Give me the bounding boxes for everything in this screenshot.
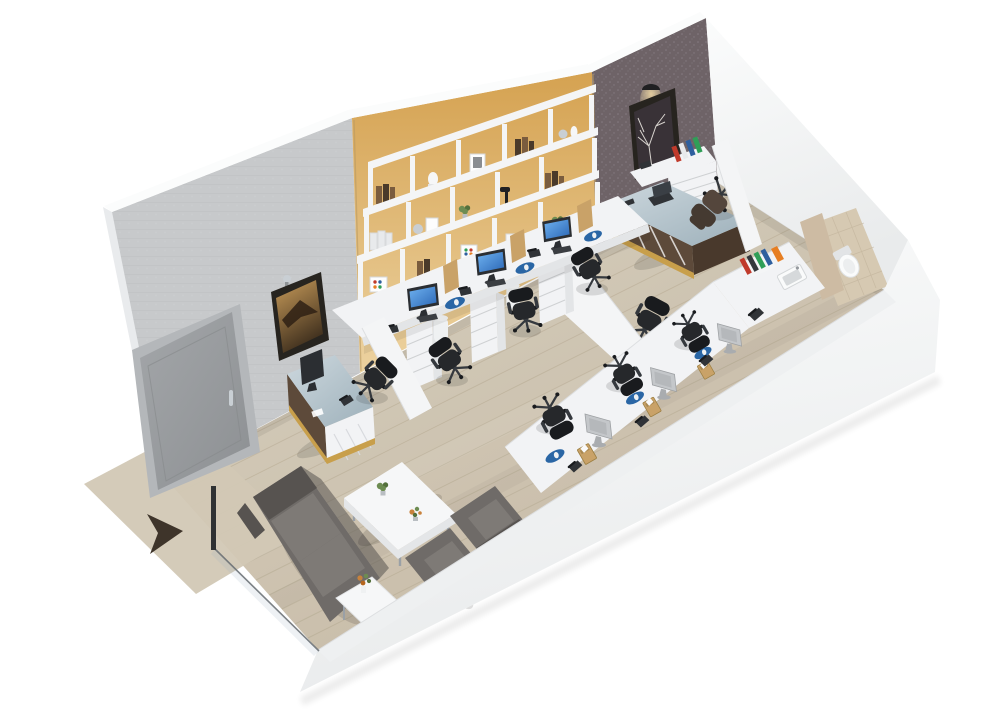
door-handle: [229, 390, 233, 406]
office-floorplan-render: [0, 0, 992, 727]
wall-lamp-reception: [283, 275, 291, 283]
floorplan-svg: [0, 0, 992, 727]
glass-door-post: [211, 486, 216, 550]
chair-shadow-3: [576, 283, 608, 296]
